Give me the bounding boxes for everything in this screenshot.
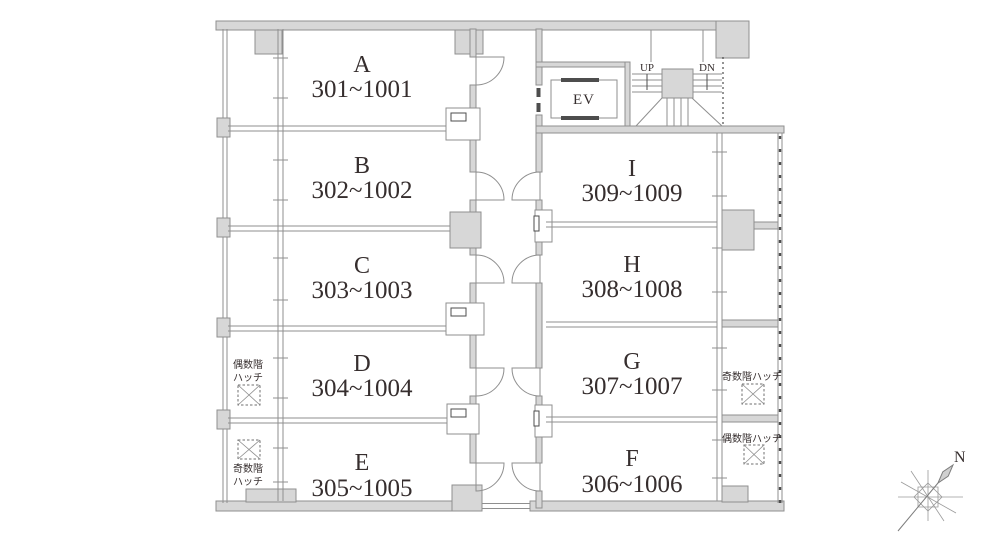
unit-b: B 302~1002 bbox=[311, 153, 412, 204]
balcony-divider bbox=[722, 415, 778, 422]
unit-c-label: C bbox=[354, 253, 370, 279]
north-arrow-icon bbox=[938, 465, 953, 483]
unit-i-rooms: 309~1009 bbox=[581, 180, 682, 207]
door-swings bbox=[476, 57, 540, 491]
hatch-right-even-label: 偶数階ハッチ bbox=[722, 432, 782, 445]
door-unit-c bbox=[476, 255, 504, 283]
balcony-divider bbox=[217, 218, 230, 237]
elevator-label: EV bbox=[573, 92, 595, 108]
unit-g-rooms: 307~1007 bbox=[581, 373, 682, 400]
balcony-divider bbox=[722, 210, 754, 250]
floor-plan-page: EV UP DN bbox=[0, 0, 1000, 548]
unit-d-label: D bbox=[353, 351, 370, 377]
hatch-left-even-label-2: ハッチ bbox=[233, 372, 263, 384]
unit-i-label: I bbox=[628, 156, 636, 182]
elevator: EV bbox=[536, 62, 630, 126]
structural-column bbox=[450, 212, 481, 248]
unit-b-label: B bbox=[354, 153, 370, 179]
balcony-divider bbox=[722, 320, 778, 327]
window-sill-ticks bbox=[712, 152, 727, 478]
right-window-wall bbox=[712, 133, 727, 501]
unit-f: F 306~1006 bbox=[581, 446, 682, 498]
door-unit-a bbox=[476, 57, 504, 85]
unit-e-rooms: 305~1005 bbox=[311, 475, 412, 502]
hatch-left-even-label-1: 偶数階 bbox=[233, 358, 263, 371]
compass-north-label: N bbox=[954, 449, 966, 466]
unit-d: D 304~1004 bbox=[311, 351, 413, 402]
elevator-door-mark bbox=[537, 88, 541, 97]
structural-column bbox=[452, 485, 482, 511]
unit-f-rooms: 306~1006 bbox=[581, 471, 682, 498]
building-outer-walls bbox=[216, 21, 784, 511]
compass-rose: N bbox=[898, 449, 966, 531]
hatch-right-odd-label: 奇数階ハッチ bbox=[722, 370, 782, 383]
stair-landing bbox=[662, 69, 693, 98]
unit-a: A 301~1001 bbox=[311, 52, 412, 103]
hatch-right-odd: 奇数階ハッチ bbox=[722, 370, 782, 404]
unit-a-rooms: 301~1001 bbox=[311, 76, 412, 103]
left-window-wall bbox=[273, 29, 288, 501]
hatch-right-even: 偶数階ハッチ bbox=[722, 432, 782, 464]
stairs-down-label: DN bbox=[699, 62, 715, 74]
unit-e-label: E bbox=[355, 450, 370, 476]
balcony-divider bbox=[217, 318, 230, 337]
balcony-divider bbox=[217, 118, 230, 137]
door-unit-f bbox=[512, 463, 540, 491]
unit-a-label: A bbox=[353, 52, 371, 78]
corridor-west-wall bbox=[450, 29, 482, 511]
door-unit-d bbox=[476, 368, 504, 396]
unit-h-label: H bbox=[623, 252, 640, 278]
stairs-up-label: UP bbox=[640, 62, 654, 74]
unit-d-rooms: 304~1004 bbox=[311, 375, 413, 402]
door-unit-i bbox=[512, 172, 540, 200]
unit-g: G 307~1007 bbox=[581, 349, 682, 400]
hatch-left-even: 偶数階 ハッチ bbox=[233, 358, 263, 405]
unit-f-label: F bbox=[625, 446, 638, 472]
unit-b-rooms: 302~1002 bbox=[311, 177, 412, 204]
door-unit-g bbox=[512, 368, 540, 396]
elevator-door-mark bbox=[537, 103, 541, 112]
unit-e: E 305~1005 bbox=[311, 450, 412, 502]
right-balcony bbox=[722, 133, 782, 503]
unit-c: C 303~1003 bbox=[311, 253, 412, 304]
balcony-divider bbox=[217, 410, 230, 429]
unit-c-rooms: 303~1003 bbox=[311, 277, 412, 304]
unit-g-label: G bbox=[623, 349, 640, 375]
hatch-left-odd: 奇数階 ハッチ bbox=[233, 440, 263, 488]
left-balcony bbox=[217, 29, 230, 503]
hatch-left-odd-label-1: 奇数階 bbox=[233, 462, 263, 475]
door-unit-h bbox=[512, 255, 540, 283]
door-unit-b bbox=[476, 172, 504, 200]
unit-h: H 308~1008 bbox=[581, 252, 682, 303]
unit-h-rooms: 308~1008 bbox=[581, 276, 682, 303]
hatch-left-odd-label-2: ハッチ bbox=[233, 476, 263, 488]
floor-plan-svg: EV UP DN bbox=[0, 0, 1000, 548]
unit-i: I 309~1009 bbox=[581, 156, 682, 207]
